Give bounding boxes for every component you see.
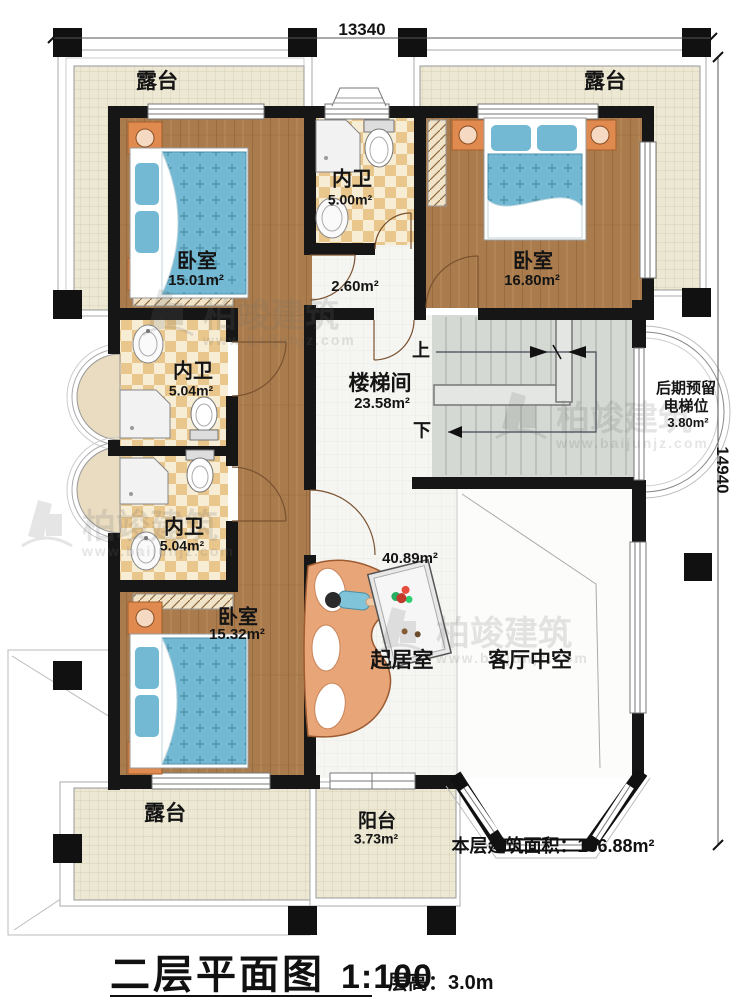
window-bedroom3-south [152, 773, 270, 789]
svg-text:柏竣建筑: 柏竣建筑 [436, 614, 572, 653]
dimension-top: 13340 [338, 21, 385, 39]
bay-window-left-1 [67, 344, 120, 450]
label-stair-down: 下 [413, 422, 431, 441]
window-bedroom2-north [478, 104, 598, 119]
label-terrace-top-right: 露台 [584, 71, 626, 93]
label-balcony-name: 阳台 [358, 812, 396, 832]
label-stairwell-area: 23.58m² [354, 396, 410, 412]
svg-text:www.baijunjz.com: www.baijunjz.com [555, 435, 709, 451]
label-bedroom3-area: 15.32m² [209, 627, 265, 643]
label-balcony-area: 3.73m² [354, 832, 398, 847]
label-bath-mid-area: 5.04m² [169, 384, 213, 399]
window-bedroom1-north [148, 104, 264, 119]
window-bath-top-north [325, 104, 389, 119]
label-elevator-line2: 电梯位 [663, 399, 708, 415]
label-elevator-area: 3.80m² [667, 416, 708, 430]
floor-height-note: 层高：3.0m [388, 966, 494, 995]
floor-area-note: 本层建筑面积：156.88m² [451, 832, 654, 858]
label-stair-up: 上 [412, 342, 430, 361]
shower-lower [120, 458, 168, 504]
svg-text:柏竣建筑: 柏竣建筑 [203, 296, 339, 335]
window-bedroom2-east [640, 142, 656, 278]
svg-text:www.baijunjz.com: www.baijunjz.com [202, 332, 356, 348]
svg-text:www.baijunjz.com: www.baijunjz.com [81, 543, 235, 559]
sliding-door-balcony [330, 773, 415, 789]
toilet-top [364, 120, 394, 167]
label-void-name: 客厅中空 [488, 650, 572, 672]
label-stairwell-name: 楼梯间 [349, 373, 412, 395]
shower-middle [120, 390, 170, 438]
entry-step-top [332, 88, 386, 106]
label-bath-lower-name: 内卫 [164, 518, 204, 539]
floor-area-label: 本层建筑面积： [451, 836, 577, 856]
label-bedroom2-name: 卧室 [513, 252, 553, 273]
label-bedroom1-name: 卧室 [177, 252, 217, 273]
drawing-title: 二层平面图 1:100 [110, 942, 433, 1000]
floor-plan-page: 柏竣建筑 www.baijunjz.com 柏竣建筑 www.baijunjz.… [0, 0, 750, 1005]
title-name: 二层平面图 [110, 942, 325, 1000]
label-elevator-line1: 后期预留 [656, 381, 716, 397]
label-bedroom2-area: 16.80m² [504, 273, 560, 289]
title-underline [110, 995, 372, 997]
label-bath-mid-name: 内卫 [173, 362, 213, 383]
terrace-bottom-area [60, 782, 322, 906]
label-terrace-top-left: 露台 [136, 71, 178, 93]
shower-top [316, 120, 360, 172]
label-bedroom1-area: 15.01m² [168, 273, 224, 289]
wardrobe-bedroom2 [428, 120, 446, 206]
floor-area-value: 156.88m² [577, 836, 654, 856]
toilet-lower [186, 450, 214, 492]
dimension-right: 14940 [713, 446, 731, 493]
window-void-east [630, 542, 646, 713]
label-bath-top-name: 内卫 [332, 170, 372, 191]
label-hallway-area: 2.60m² [331, 279, 379, 295]
label-bath-lower-area: 5.04m² [160, 539, 204, 554]
label-terrace-bottom: 露台 [144, 803, 186, 825]
label-living-area: 40.89m² [382, 551, 438, 567]
label-living-name: 起居室 [371, 650, 434, 672]
toilet-middle [190, 397, 218, 440]
label-bath-top-area: 5.00m² [328, 193, 372, 208]
